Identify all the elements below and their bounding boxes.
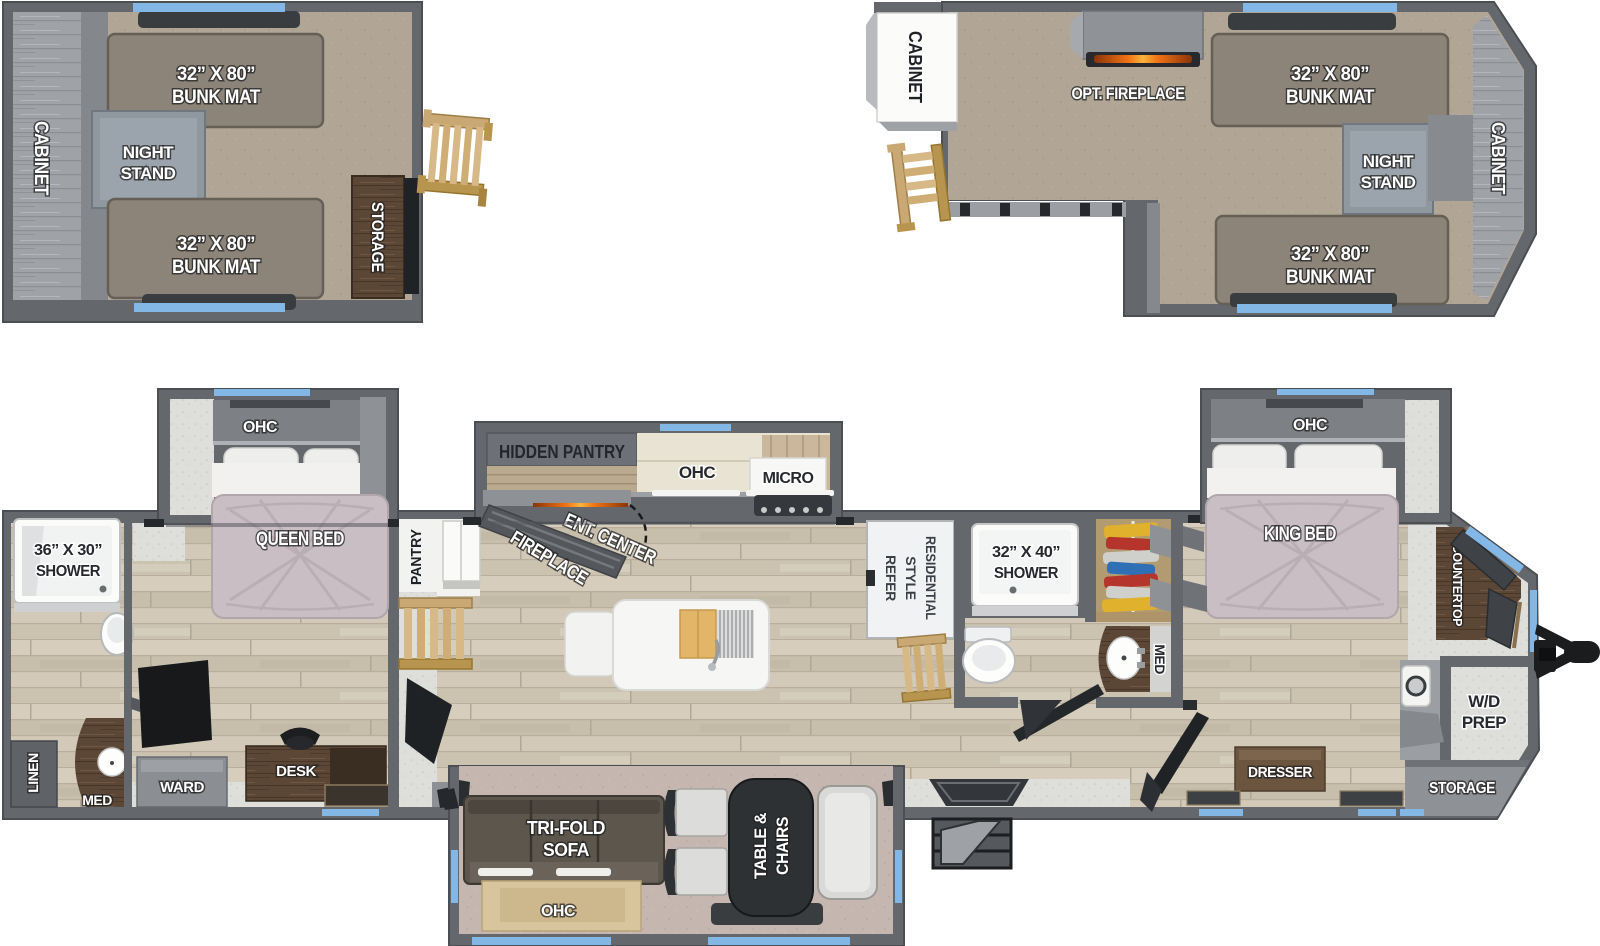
svg-text:32” X 80”: 32” X 80” bbox=[177, 234, 255, 255]
svg-text:OPT. FIREPLACE: OPT. FIREPLACE bbox=[1072, 84, 1185, 103]
svg-text:BUNK MAT: BUNK MAT bbox=[172, 87, 261, 108]
svg-text:STORAGE: STORAGE bbox=[1429, 780, 1496, 797]
svg-text:SHOWER: SHOWER bbox=[36, 563, 101, 580]
svg-text:KING BED: KING BED bbox=[1264, 524, 1336, 545]
svg-text:OHC: OHC bbox=[541, 903, 576, 920]
svg-text:RESIDENTIAL: RESIDENTIAL bbox=[923, 536, 939, 620]
svg-text:DRESSER: DRESSER bbox=[1248, 764, 1313, 781]
svg-text:LINEN: LINEN bbox=[25, 753, 41, 793]
svg-text:TRI-FOLD: TRI-FOLD bbox=[527, 818, 605, 838]
svg-text:OHC: OHC bbox=[243, 419, 278, 436]
svg-text:STORAGE: STORAGE bbox=[368, 202, 387, 272]
svg-text:32” X 40”: 32” X 40” bbox=[992, 544, 1060, 561]
svg-text:PANTRY: PANTRY bbox=[408, 529, 425, 585]
svg-text:NIGHT: NIGHT bbox=[123, 143, 175, 162]
svg-text:MED: MED bbox=[1152, 644, 1168, 674]
svg-text:W/D: W/D bbox=[1468, 692, 1500, 711]
svg-text:32” X 80”: 32” X 80” bbox=[177, 64, 255, 85]
svg-text:32” X 80”: 32” X 80” bbox=[1291, 244, 1369, 265]
svg-text:36” X 30”: 36” X 30” bbox=[34, 542, 102, 559]
svg-text:TABLE &: TABLE & bbox=[751, 813, 770, 879]
svg-text:MICRO: MICRO bbox=[763, 470, 814, 487]
svg-text:DESK: DESK bbox=[276, 763, 316, 780]
svg-text:STYLE: STYLE bbox=[903, 556, 919, 600]
svg-text:MED: MED bbox=[82, 792, 112, 808]
svg-text:COUNTERTOP: COUNTERTOP bbox=[1450, 544, 1465, 627]
svg-text:OHC: OHC bbox=[1293, 417, 1328, 434]
svg-text:32” X 80”: 32” X 80” bbox=[1291, 64, 1369, 85]
svg-text:STAND: STAND bbox=[121, 164, 176, 183]
svg-text:NIGHT: NIGHT bbox=[1363, 152, 1415, 171]
svg-text:CABINET: CABINET bbox=[30, 121, 51, 196]
svg-text:CABINET: CABINET bbox=[905, 31, 925, 103]
svg-text:BUNK MAT: BUNK MAT bbox=[1286, 267, 1375, 288]
svg-text:PREP: PREP bbox=[1462, 713, 1506, 732]
svg-text:CABINET: CABINET bbox=[1488, 122, 1508, 194]
svg-text:WARD: WARD bbox=[160, 779, 204, 796]
svg-text:BUNK MAT: BUNK MAT bbox=[172, 257, 261, 278]
svg-text:OHC: OHC bbox=[679, 463, 716, 482]
svg-text:CHAIRS: CHAIRS bbox=[773, 817, 792, 875]
svg-text:HIDDEN PANTRY: HIDDEN PANTRY bbox=[499, 442, 625, 462]
svg-text:SHOWER: SHOWER bbox=[994, 565, 1059, 582]
svg-text:BUNK MAT: BUNK MAT bbox=[1286, 87, 1375, 108]
svg-text:REFER: REFER bbox=[883, 555, 899, 601]
svg-text:QUEEN BED: QUEEN BED bbox=[256, 529, 344, 550]
svg-text:STAND: STAND bbox=[1361, 173, 1416, 192]
svg-text:SOFA: SOFA bbox=[543, 840, 589, 860]
